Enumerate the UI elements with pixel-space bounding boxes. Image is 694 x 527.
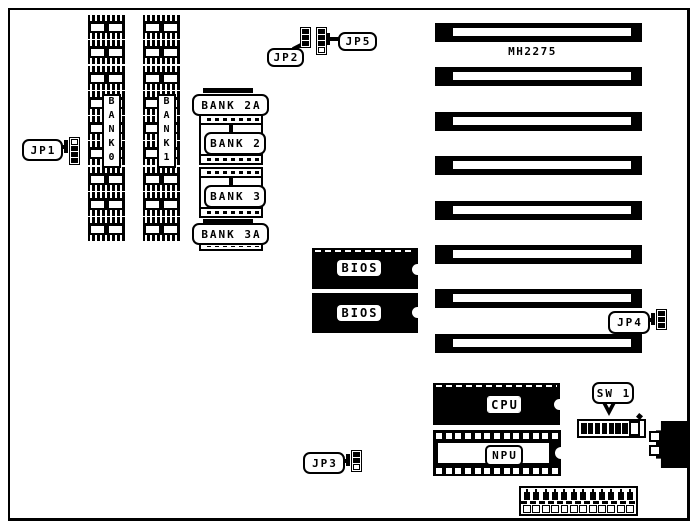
socket-pin <box>542 433 548 439</box>
header-cell <box>532 505 540 513</box>
bank3-label: BANK 3 <box>204 185 266 208</box>
bank3a-label: BANK 3A <box>192 223 269 245</box>
expansion-slot <box>435 23 642 42</box>
keyboard-connector-pin <box>649 445 661 456</box>
jumper-cell-closed <box>658 317 665 322</box>
header-cell <box>551 505 559 513</box>
chip-notch-dashline <box>436 385 557 387</box>
jp4-pointer-bar <box>651 313 655 325</box>
header-pin <box>627 492 633 500</box>
socket-pin <box>465 468 471 474</box>
dram-chip <box>143 167 180 191</box>
jp3-callout: JP3 <box>303 452 345 474</box>
socket-pin <box>475 468 481 474</box>
dram-chip <box>143 40 180 64</box>
npu-pin-row <box>436 433 558 439</box>
dip-switch-position-on <box>609 423 615 434</box>
jumper-cell-closed <box>658 323 665 328</box>
simm-pin-stripes <box>199 207 263 218</box>
bios1-label: BIOS <box>337 260 381 276</box>
dip-switch-position-off <box>629 421 640 436</box>
socket-pin <box>465 433 471 439</box>
dram-chip <box>88 167 125 191</box>
jumper-cell-closed <box>302 35 309 40</box>
socket-pin <box>455 433 461 439</box>
dram-chip <box>143 66 180 90</box>
header-cell <box>542 505 550 513</box>
jumper-cell-closed <box>353 458 360 463</box>
jumper-cell-open <box>318 47 325 53</box>
cpu-chip: CPU <box>433 383 560 425</box>
bios-chip-1: BIOS <box>312 248 418 289</box>
socket-pin <box>436 468 442 474</box>
cpu-label: CPU <box>488 397 520 412</box>
npu-label: NPU <box>485 445 523 466</box>
chip-notch-dashline <box>315 250 415 252</box>
dram-chip <box>88 15 125 39</box>
bank0-label: BANK0 <box>102 94 121 168</box>
expansion-slot <box>435 245 642 264</box>
socket-pin <box>446 433 452 439</box>
header-pin <box>561 492 567 500</box>
dip-switch-position-on <box>602 423 608 434</box>
sw1-callout: SW 1 <box>592 382 634 404</box>
jp2-callout: JP2 <box>267 48 304 67</box>
bios-chip-2: BIOS <box>312 293 418 333</box>
dram-chip <box>88 217 125 241</box>
bank1-label: BANK1 <box>157 94 176 168</box>
chip-notch <box>555 447 561 459</box>
header-pin <box>590 492 596 500</box>
jumper-cell-open <box>353 464 360 470</box>
motherboard-jumper-diagram: BANK0 BANK1 BANK 2A BANK 2 BANK 3 BANK 3… <box>0 0 694 527</box>
simm-pin-stripes <box>199 154 263 165</box>
dip-switch-position-on <box>595 423 601 434</box>
expansion-slot <box>435 112 642 131</box>
bank2-label: BANK 2 <box>204 132 266 155</box>
socket-pin <box>446 468 452 474</box>
jp5-jumper-block <box>316 27 327 55</box>
header-cell <box>570 505 578 513</box>
socket-pin <box>542 468 548 474</box>
jumper-cell-closed <box>71 146 78 151</box>
socket-pin <box>552 468 558 474</box>
jumper-cell-closed <box>318 35 325 40</box>
header-cell <box>579 505 587 513</box>
jumper-cell-closed <box>658 311 665 316</box>
jp4-jumper-block <box>656 309 667 330</box>
expansion-slot <box>435 201 642 220</box>
socket-pin <box>494 468 500 474</box>
header-cell <box>589 505 597 513</box>
header-pin <box>543 492 549 500</box>
header-pin <box>599 492 605 500</box>
jumper-cell-closed <box>71 152 78 157</box>
jp1-jumper-block <box>69 137 80 165</box>
header-cell <box>523 505 531 513</box>
dip-switch-position-on <box>581 423 587 434</box>
chip-notch <box>412 264 418 275</box>
socket-pin <box>533 468 539 474</box>
dip-switch-position-on <box>588 423 594 434</box>
pin-header-bottom-row <box>523 505 634 513</box>
bios2-label: BIOS <box>337 305 381 321</box>
header-pin <box>608 492 614 500</box>
jumper-cell-closed <box>302 41 309 46</box>
socket-pin <box>513 468 519 474</box>
jumper-cell-closed <box>318 41 325 46</box>
bank2a-label: BANK 2A <box>192 94 269 116</box>
jp4-callout: JP4 <box>608 311 650 334</box>
simm-pin-stripes <box>199 167 263 178</box>
expansion-slots <box>435 23 642 353</box>
jumper-cell-closed <box>71 158 78 163</box>
chip-notch <box>554 399 560 410</box>
socket-pin <box>436 433 442 439</box>
npu-pin-row <box>436 468 558 474</box>
jumper-cell-open <box>71 139 78 145</box>
jp3-pointer-bar <box>346 454 350 466</box>
simm-edge-bar <box>203 88 253 93</box>
dip-switch-position-on <box>622 423 628 434</box>
socket-pin <box>533 433 539 439</box>
header-pin <box>618 492 624 500</box>
expansion-slot <box>435 289 642 308</box>
npu-socket: NPU <box>433 430 561 476</box>
dram-chip <box>88 66 125 90</box>
socket-pin <box>504 433 510 439</box>
header-cell <box>561 505 569 513</box>
board-model-label: MH2275 <box>480 45 585 58</box>
header-pin <box>533 492 539 500</box>
pin-header-top-row <box>524 489 633 500</box>
bottom-pin-header <box>519 486 638 516</box>
header-pin <box>580 492 586 500</box>
header-cell <box>617 505 625 513</box>
socket-pin <box>484 468 490 474</box>
socket-pin <box>475 433 481 439</box>
jp1-callout: JP1 <box>22 139 63 161</box>
chip-notch <box>412 307 418 318</box>
jp3-jumper-block <box>351 450 362 472</box>
header-cell <box>626 505 634 513</box>
header-pin <box>571 492 577 500</box>
dram-chip <box>143 192 180 216</box>
keyboard-connector-pin <box>649 431 661 442</box>
jp2-jumper-block <box>300 27 311 48</box>
socket-pin <box>523 433 529 439</box>
dram-chip <box>88 40 125 64</box>
header-cell <box>607 505 615 513</box>
header-cell <box>598 505 606 513</box>
socket-pin <box>504 468 510 474</box>
socket-pin <box>552 433 558 439</box>
pin-header-divider <box>521 501 636 504</box>
dram-chip <box>143 15 180 39</box>
jumper-cell-closed <box>318 29 325 34</box>
header-pin <box>524 492 530 500</box>
expansion-slot <box>435 156 642 175</box>
socket-pin <box>523 468 529 474</box>
jumper-cell-closed <box>353 452 360 457</box>
socket-pin <box>513 433 519 439</box>
expansion-slot <box>435 334 642 353</box>
dram-chip <box>143 217 180 241</box>
jumper-cell-closed <box>302 29 309 34</box>
jp5-callout: JP5 <box>338 32 377 51</box>
socket-pin <box>455 468 461 474</box>
jp1-pointer-bar <box>64 140 68 153</box>
socket-pin <box>484 433 490 439</box>
sw1-dip-switch <box>577 419 646 438</box>
dram-chip <box>88 192 125 216</box>
dip-switch-position-on <box>615 423 621 434</box>
header-pin <box>552 492 558 500</box>
socket-pin <box>494 433 500 439</box>
expansion-slot <box>435 67 642 86</box>
